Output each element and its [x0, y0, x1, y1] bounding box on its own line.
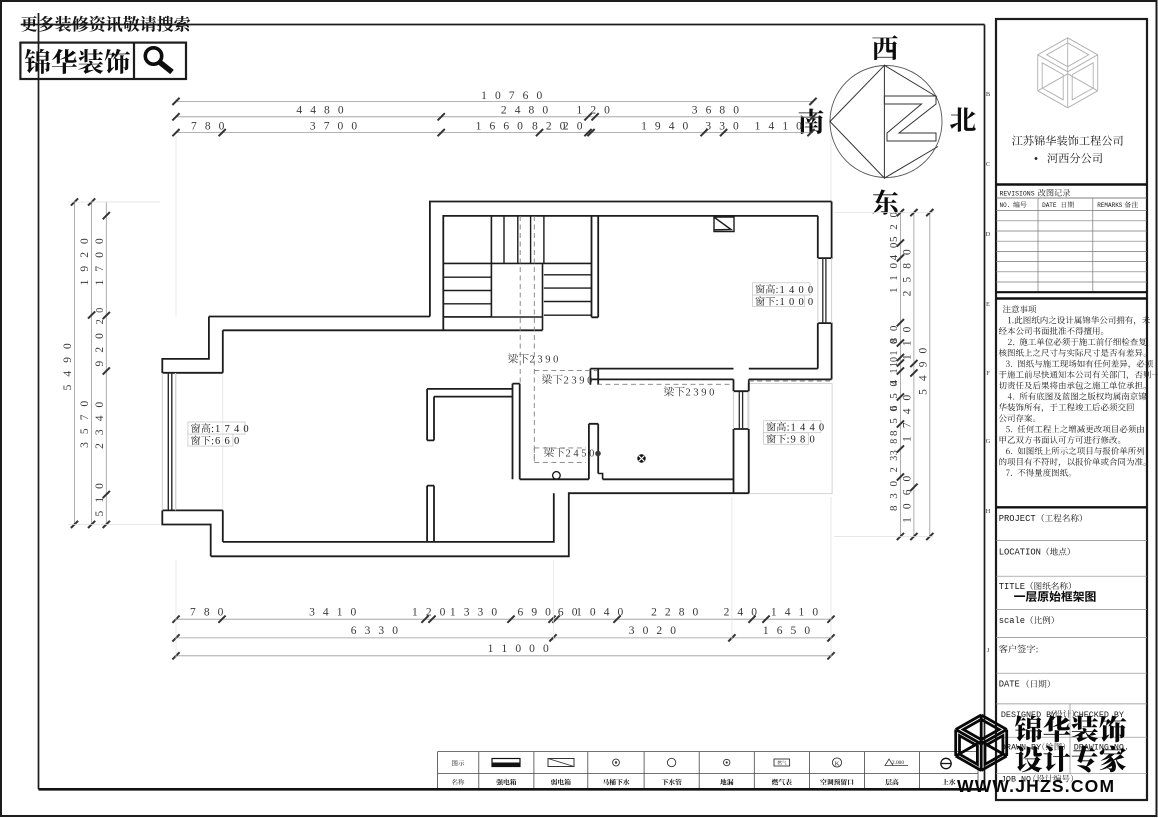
svg-text:2 5 8 0: 2 5 8 0 — [902, 247, 914, 297]
svg-text:J: J — [987, 647, 990, 654]
svg-text:2 3 9 0: 2 3 9 0 — [564, 375, 593, 386]
svg-text:NO.: NO. — [1000, 202, 1011, 209]
svg-text:2.000: 2.000 — [892, 760, 904, 766]
svg-text:1 0 4 0: 1 0 4 0 — [576, 607, 626, 619]
svg-text:2 3 4 0: 2 3 4 0 — [94, 399, 106, 449]
svg-text:DATE: DATE — [999, 680, 1020, 690]
svg-text:1 0 6 0: 1 0 6 0 — [902, 473, 914, 523]
svg-text:LOCATION: LOCATION — [999, 548, 1041, 558]
svg-text:D: D — [986, 231, 991, 238]
svg-text:8 3 0: 8 3 0 — [888, 479, 900, 511]
svg-text:3 0 2 0: 3 0 2 0 — [629, 625, 679, 637]
svg-text:1 7 0 0: 1 7 0 0 — [94, 236, 106, 286]
svg-text:1 2 0: 1 2 0 — [577, 105, 613, 117]
svg-text:2 4 8 0: 2 4 8 0 — [501, 105, 551, 117]
svg-text:1 4 0 0: 1 4 0 0 — [780, 285, 814, 296]
svg-text:9 8 0: 9 8 0 — [791, 435, 816, 446]
svg-text:REVISIONS: REVISIONS — [1000, 191, 1035, 198]
svg-text:C: C — [986, 161, 990, 168]
svg-text:2 4 5 0: 2 4 5 0 — [566, 448, 595, 459]
svg-text:1 1 0 0 0: 1 1 0 0 0 — [488, 643, 552, 655]
svg-text:8 5 0: 8 5 0 — [888, 404, 900, 436]
svg-text:2 3 9 0: 2 3 9 0 — [530, 355, 559, 366]
svg-text:6 3 3 0: 6 3 3 0 — [351, 625, 401, 637]
svg-text:1 3 3 0: 1 3 3 0 — [450, 607, 500, 619]
svg-text:1 0 0 0: 1 0 0 0 — [780, 297, 814, 308]
svg-text:6 6 0: 6 6 0 — [215, 436, 240, 447]
svg-text:E: E — [986, 301, 990, 308]
svg-text:9 2 0: 9 2 0 — [94, 331, 106, 367]
svg-text:3 5 7 0: 3 5 7 0 — [79, 398, 91, 448]
svg-text:1 7 4 0: 1 7 4 0 — [902, 392, 914, 442]
svg-text:7 8 0: 7 8 0 — [191, 121, 227, 133]
svg-text:2 3: 2 3 — [889, 454, 900, 473]
svg-text:scale: scale — [999, 616, 1025, 626]
svg-text:1 7 4 0: 1 7 4 0 — [215, 424, 249, 435]
svg-text:4 0: 4 0 — [888, 241, 900, 261]
svg-text:H: H — [986, 508, 991, 515]
svg-text:1 6 6 0: 1 6 6 0 — [476, 121, 526, 133]
svg-text:B: B — [986, 91, 991, 98]
svg-text:2 0: 2 0 — [95, 306, 106, 325]
svg-text:2 2 8 0: 2 2 8 0 — [651, 607, 701, 619]
svg-text:1 9 2 0: 1 9 2 0 — [79, 236, 91, 286]
svg-text:3 7 0 0: 3 7 0 0 — [310, 121, 360, 133]
svg-text:PROJECT: PROJECT — [999, 514, 1036, 524]
svg-text:REMARKS: REMARKS — [1097, 202, 1123, 209]
svg-text:1 4 1 0: 1 4 1 0 — [755, 121, 805, 133]
svg-text:WWW.JHZS.COM: WWW.JHZS.COM — [957, 776, 1115, 796]
svg-text:1 6 5 0: 1 6 5 0 — [763, 625, 813, 637]
svg-text:3 8: 3 8 — [889, 437, 900, 456]
svg-text:6 9 0: 6 9 0 — [518, 607, 554, 619]
svg-text:7 8 0: 7 8 0 — [190, 607, 226, 619]
svg-text:F: F — [986, 370, 990, 377]
svg-text:3 3 0: 3 3 0 — [705, 121, 741, 133]
svg-text:1 1 0: 1 1 0 — [902, 324, 914, 360]
svg-text:1 4 4 0: 1 4 4 0 — [791, 423, 825, 434]
svg-text:2 4 0: 2 4 0 — [724, 607, 760, 619]
svg-text:1 2 0: 1 2 0 — [412, 607, 448, 619]
svg-text:G: G — [986, 438, 991, 445]
svg-text:1 1 0: 1 1 0 — [888, 261, 900, 293]
svg-text:1 9 4 0: 1 9 4 0 — [641, 121, 691, 133]
svg-text:3 4 1 0: 3 4 1 0 — [309, 607, 359, 619]
svg-text:K: K — [835, 760, 840, 767]
svg-text:4 4 8 0: 4 4 8 0 — [296, 105, 346, 117]
svg-text:5 2 0: 5 2 0 — [888, 210, 900, 242]
svg-text:1 0 7 6 0: 1 0 7 6 0 — [481, 90, 545, 102]
svg-text:3 6 8 0: 3 6 8 0 — [692, 105, 742, 117]
svg-text:1 4 1 0: 1 4 1 0 — [771, 607, 821, 619]
svg-text:TITLE: TITLE — [999, 582, 1025, 592]
svg-text:5 4 9 0: 5 4 9 0 — [62, 341, 74, 391]
svg-text:DATE: DATE — [1042, 202, 1057, 209]
svg-text:2 3 9 0: 2 3 9 0 — [686, 388, 715, 399]
svg-text:5 4 9 0: 5 4 9 0 — [917, 345, 929, 395]
svg-text:5 1 0: 5 1 0 — [94, 481, 106, 517]
svg-text:2 0: 2 0 — [563, 121, 585, 133]
